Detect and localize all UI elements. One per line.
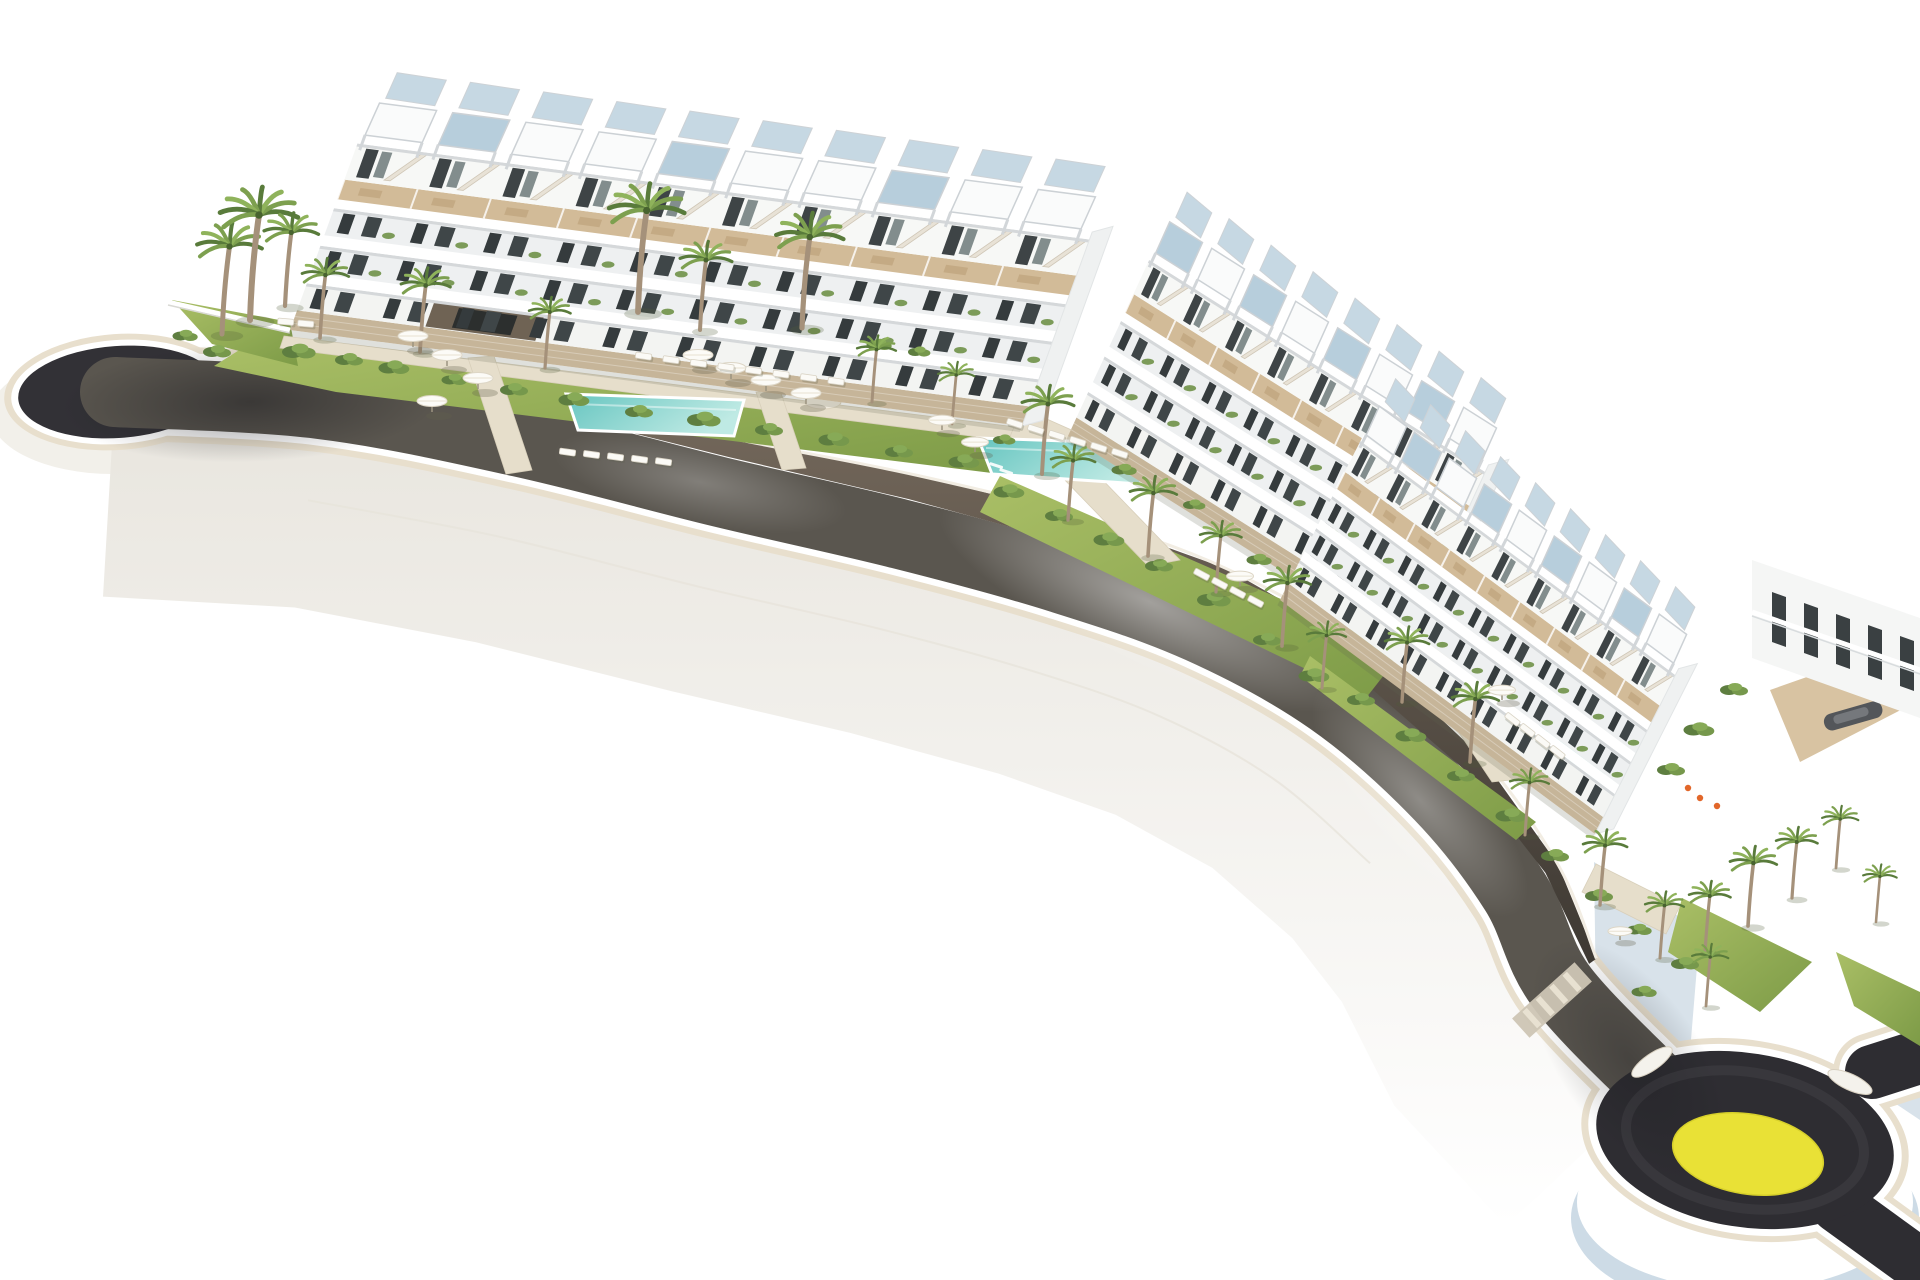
balcony-plant bbox=[1348, 532, 1360, 538]
balcony-plant bbox=[1041, 319, 1054, 325]
umbrella-shadow bbox=[800, 404, 826, 412]
rear-pergola-panel bbox=[1045, 159, 1106, 192]
palm-shadow bbox=[236, 316, 275, 328]
shrub bbox=[449, 374, 462, 381]
shrub-cluster bbox=[1657, 763, 1685, 776]
palm-shadow bbox=[1655, 957, 1675, 963]
palm-shadow bbox=[1317, 687, 1337, 693]
shrub bbox=[1634, 924, 1647, 931]
balcony-plant bbox=[1612, 772, 1624, 778]
palm-frond bbox=[1266, 583, 1287, 590]
shrub bbox=[1053, 509, 1067, 517]
pergola-solar-panel bbox=[658, 142, 730, 181]
palm-shadow bbox=[624, 308, 662, 320]
pergola-frame bbox=[585, 132, 657, 171]
render-canvas bbox=[0, 0, 1920, 1280]
lounger bbox=[277, 318, 293, 325]
palm-crown bbox=[1151, 491, 1156, 496]
palm-trunk bbox=[250, 215, 259, 320]
umbrella-shadow bbox=[937, 430, 960, 437]
balcony-plant bbox=[661, 309, 674, 315]
palm-crown bbox=[1285, 581, 1290, 586]
balcony-plant bbox=[382, 233, 395, 239]
palm-crown bbox=[1219, 534, 1223, 538]
palm-frond bbox=[1824, 819, 1841, 825]
shrub bbox=[1679, 957, 1693, 965]
pergola-solar-panel bbox=[438, 113, 510, 152]
palm-crown bbox=[1708, 955, 1712, 959]
rear-pergola-panel bbox=[386, 73, 447, 106]
palm-crown bbox=[1751, 861, 1756, 866]
palm-trunk bbox=[1836, 819, 1840, 868]
shrub bbox=[1261, 633, 1275, 641]
shrub bbox=[1189, 499, 1200, 505]
palm-crown bbox=[643, 207, 650, 214]
balcony-plant bbox=[1184, 385, 1196, 391]
balcony-plant bbox=[1226, 412, 1238, 418]
palm-frond bbox=[1202, 536, 1221, 543]
shrub bbox=[180, 330, 193, 337]
palm-tree bbox=[1822, 806, 1858, 873]
palm-shadow bbox=[1520, 834, 1540, 840]
palm-trunk bbox=[285, 233, 291, 307]
palm-trunk bbox=[1792, 842, 1797, 898]
balcony-plant bbox=[528, 252, 541, 258]
umbrella-shadow bbox=[1615, 940, 1636, 946]
palm-trunk bbox=[1748, 863, 1753, 926]
shrub bbox=[827, 432, 842, 441]
rear-pergola-panel bbox=[532, 92, 593, 125]
palm-shadow bbox=[1034, 472, 1060, 480]
palm-crown bbox=[704, 258, 709, 263]
palm-frond bbox=[1732, 863, 1753, 870]
balcony-plant bbox=[1418, 584, 1430, 590]
balcony-plant bbox=[1142, 359, 1154, 365]
palm-crown bbox=[323, 273, 328, 278]
palm-frond bbox=[1778, 842, 1797, 849]
shrub bbox=[1307, 668, 1322, 677]
palm-frond bbox=[1691, 896, 1710, 903]
architectural-render bbox=[0, 0, 1920, 1280]
shrub bbox=[1665, 763, 1679, 771]
balcony-plant bbox=[588, 299, 601, 305]
umbrella-shadow bbox=[441, 366, 467, 374]
palm-crown bbox=[423, 283, 428, 288]
balcony-plant bbox=[1523, 662, 1535, 668]
palm-shadow bbox=[1741, 924, 1764, 931]
shrub-cluster bbox=[173, 330, 198, 341]
rear-pergola-panel bbox=[971, 150, 1032, 183]
balcony-plant bbox=[1472, 668, 1484, 674]
shrub bbox=[1504, 808, 1519, 817]
balcony-plant bbox=[1027, 357, 1040, 363]
palm-frond bbox=[200, 246, 230, 256]
pool-block-a bbox=[566, 394, 744, 436]
shrub bbox=[387, 360, 402, 369]
balcony-plant bbox=[515, 289, 528, 295]
palm-shadow bbox=[790, 325, 824, 335]
umbrella-shadow bbox=[970, 452, 993, 459]
palm-shadow bbox=[313, 336, 336, 343]
palm-shadow bbox=[1787, 897, 1808, 903]
palm-crown bbox=[1473, 697, 1478, 702]
umbrella-shadow bbox=[407, 347, 433, 355]
shrub bbox=[1002, 484, 1017, 493]
shrub bbox=[1692, 722, 1707, 731]
balcony-plant bbox=[1332, 564, 1344, 570]
palm-shadow bbox=[1062, 519, 1084, 526]
balcony-plant bbox=[455, 242, 468, 248]
pergola-frame bbox=[365, 103, 437, 142]
rear-pergola-panel bbox=[459, 82, 520, 115]
balcony-plant bbox=[1437, 642, 1449, 648]
umbrella-shadow bbox=[472, 389, 498, 397]
shrub bbox=[508, 383, 522, 391]
rear-pergola-panel bbox=[605, 102, 666, 135]
shrub bbox=[1404, 728, 1419, 737]
balcony-plant bbox=[1542, 720, 1554, 726]
umbrella-shadow bbox=[760, 391, 786, 399]
balcony-plant bbox=[1628, 740, 1640, 746]
shrub bbox=[1455, 769, 1469, 777]
umbrella-shadow bbox=[426, 412, 452, 420]
balcony-plant bbox=[602, 261, 615, 267]
umbrella-shadow bbox=[725, 379, 751, 387]
rear-pergola-panel bbox=[679, 111, 740, 144]
palm-shadow bbox=[867, 401, 887, 407]
palm-frond bbox=[224, 214, 259, 226]
orange-parasol bbox=[1685, 785, 1691, 791]
shrub bbox=[999, 434, 1010, 440]
shrub bbox=[914, 346, 925, 352]
rear-pergola-panel bbox=[752, 121, 813, 154]
balcony-plant bbox=[1367, 590, 1379, 596]
rear-pergola-panel bbox=[825, 130, 886, 163]
shrub bbox=[292, 344, 309, 354]
balcony-plant bbox=[821, 290, 834, 296]
balcony-plant bbox=[1251, 474, 1263, 480]
palm-crown bbox=[1795, 840, 1799, 844]
shrub bbox=[1639, 986, 1652, 993]
palm-shadow bbox=[1396, 701, 1418, 708]
shrub bbox=[1355, 693, 1369, 701]
palm-crown bbox=[1603, 843, 1607, 847]
balcony-plant bbox=[954, 347, 967, 353]
balcony-plant bbox=[675, 271, 688, 277]
balcony-plant bbox=[1209, 447, 1221, 453]
shrub bbox=[211, 345, 225, 353]
balcony-plant bbox=[1402, 616, 1414, 622]
balcony-plant bbox=[1577, 746, 1589, 752]
palm-crown bbox=[1071, 458, 1075, 462]
palm-crown bbox=[1528, 781, 1532, 785]
shrub-cluster bbox=[1720, 683, 1748, 696]
palm-crown bbox=[807, 234, 814, 241]
palm-crown bbox=[226, 243, 232, 249]
palm-shadow bbox=[692, 328, 718, 336]
pergola-solar-panel bbox=[878, 170, 950, 209]
balcony-plant bbox=[1593, 714, 1605, 720]
pergola-frame bbox=[804, 161, 876, 200]
pergola-frame bbox=[731, 151, 803, 190]
balcony-plant bbox=[1167, 421, 1179, 427]
balcony-plant bbox=[1453, 610, 1465, 616]
shrub bbox=[1254, 554, 1267, 561]
shrub bbox=[343, 353, 357, 361]
balcony-plant bbox=[748, 281, 761, 287]
balcony-plant bbox=[1268, 438, 1280, 444]
balcony-plant bbox=[1310, 465, 1322, 471]
balcony-plant bbox=[1125, 394, 1137, 400]
balcony-plant bbox=[1383, 558, 1395, 564]
umbrella-shadow bbox=[1497, 700, 1520, 707]
balcony-plant bbox=[1558, 688, 1570, 694]
shrub bbox=[697, 412, 714, 422]
palm-crown bbox=[1405, 640, 1409, 644]
palm-shadow bbox=[1463, 760, 1486, 767]
palm-shadow bbox=[1211, 591, 1232, 597]
palm-trunk bbox=[1876, 877, 1880, 923]
palm-crown bbox=[1838, 817, 1842, 821]
palm-frond bbox=[1585, 845, 1605, 852]
palm-frond bbox=[1865, 876, 1880, 881]
balcony-plant bbox=[968, 309, 981, 315]
palm-frond bbox=[267, 232, 292, 241]
shrub bbox=[763, 423, 777, 431]
pergola-frame bbox=[951, 180, 1023, 219]
lounger bbox=[297, 320, 313, 327]
palm-shadow bbox=[540, 367, 561, 373]
shrub bbox=[1119, 464, 1132, 471]
pergola-frame bbox=[1024, 190, 1096, 229]
rear-pergola-panel bbox=[898, 140, 959, 173]
palm-shadow bbox=[211, 331, 244, 341]
shrub-cluster bbox=[1684, 722, 1715, 736]
palm-crown bbox=[954, 373, 958, 377]
balcony-plant bbox=[368, 270, 381, 276]
orange-parasol bbox=[1697, 795, 1703, 801]
palm-crown bbox=[1708, 894, 1712, 898]
palm-crown bbox=[255, 211, 263, 219]
shrub bbox=[893, 445, 907, 453]
palm-tree bbox=[1776, 827, 1817, 903]
palm-shadow bbox=[1141, 554, 1164, 561]
palm-crown bbox=[1046, 402, 1051, 407]
orange-parasol bbox=[1714, 803, 1720, 809]
palm-crown bbox=[548, 310, 552, 314]
palm-crown bbox=[1878, 875, 1881, 878]
palm-shadow bbox=[1594, 904, 1616, 911]
shrub bbox=[1102, 532, 1117, 541]
shrub bbox=[567, 392, 582, 401]
shrub bbox=[1549, 849, 1563, 857]
pergola-frame bbox=[512, 122, 584, 161]
balcony-plant bbox=[1488, 636, 1500, 642]
palm-crown bbox=[1325, 634, 1329, 638]
palm-crown bbox=[1663, 904, 1667, 908]
road-stub-asphalt bbox=[1872, 1056, 1920, 1072]
shrub bbox=[1728, 683, 1742, 691]
palm-tree bbox=[1863, 864, 1897, 926]
palm-crown bbox=[289, 230, 294, 235]
balcony-plant bbox=[894, 300, 907, 306]
palm-shadow bbox=[1275, 644, 1298, 651]
shrub bbox=[633, 405, 647, 413]
palm-tree bbox=[1730, 846, 1777, 931]
palm-frond bbox=[1132, 493, 1153, 500]
palm-crown bbox=[875, 348, 879, 352]
lower-terrace bbox=[1685, 560, 1920, 809]
balcony-plant bbox=[734, 318, 747, 324]
palm-shadow bbox=[276, 304, 303, 312]
balcony-plant bbox=[1293, 500, 1305, 506]
